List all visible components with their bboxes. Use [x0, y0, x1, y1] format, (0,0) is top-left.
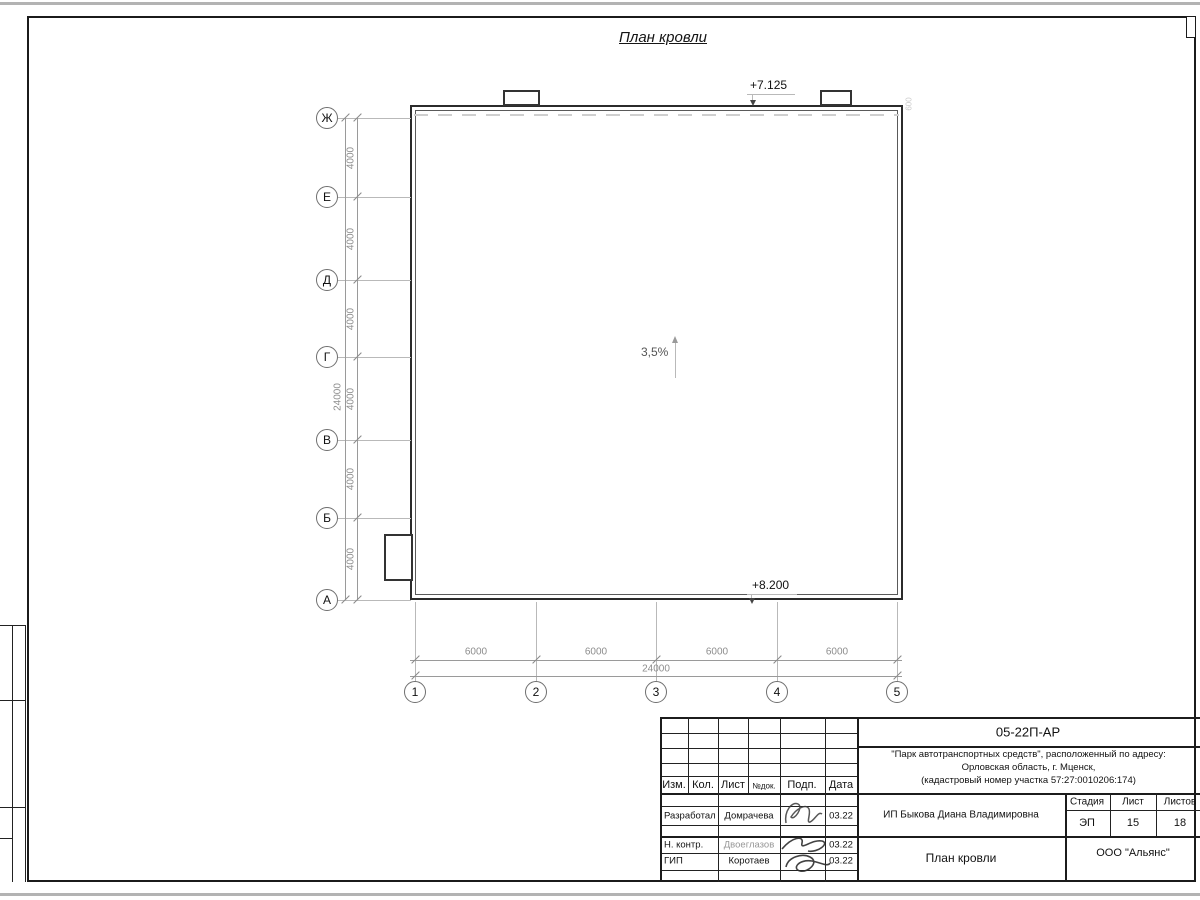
- axis-line: [338, 118, 411, 119]
- dim-label: 6000: [706, 647, 728, 658]
- wall-bumpout: [384, 534, 413, 581]
- project-description: "Парк автотранспортных средств", располо…: [860, 748, 1197, 787]
- dim-label: 6000: [465, 647, 487, 658]
- person-name: Двоеглазов: [724, 840, 775, 851]
- titleblock-line: [660, 763, 857, 764]
- axis-line: [338, 600, 411, 601]
- signature-domracheva: [782, 797, 828, 833]
- axis-letter: Е: [323, 190, 331, 204]
- col-header-ndoc: №док.: [752, 782, 775, 791]
- dim-total-label: 24000: [333, 383, 344, 411]
- titleblock-line: [1110, 793, 1111, 836]
- side-stamp-line: [12, 625, 13, 882]
- axis-letter: В: [323, 433, 331, 447]
- col-header-list: Лист: [721, 779, 745, 791]
- axis-bubble-col: 1: [404, 681, 426, 703]
- dim-label: 4000: [346, 548, 357, 570]
- slope-arrow-shaft: [675, 342, 676, 378]
- axis-bubble-col: 3: [645, 681, 667, 703]
- doc-number: 05-22П-АР: [996, 725, 1060, 740]
- slope-label: 3,5%: [641, 345, 668, 359]
- titleblock-line: [1065, 793, 1067, 882]
- axis-bubble-row: А: [316, 589, 338, 611]
- project-line: Орловская область, г. Мценск,: [860, 761, 1197, 774]
- role-label: ГИП: [664, 856, 683, 867]
- project-line: "Парк автотранспортных средств", располо…: [860, 748, 1197, 761]
- titleblock-line: [660, 748, 857, 749]
- titleblock-line: [660, 776, 857, 777]
- titleblock-line: [660, 717, 662, 882]
- side-stamp-line: [0, 807, 26, 808]
- stage-label: Стадия: [1070, 797, 1104, 808]
- titleblock-line: [660, 836, 1200, 838]
- axis-bubble-row: Д: [316, 269, 338, 291]
- axis-number: 1: [412, 685, 419, 699]
- sheet-title: План кровли: [926, 851, 997, 865]
- dim-line-left-inner: [357, 118, 358, 600]
- titleblock-line: [718, 717, 719, 882]
- frame-corner-box: [1186, 16, 1196, 38]
- signature-korotaev: [778, 833, 836, 877]
- side-stamp-line: [0, 625, 26, 626]
- titleblock-line: [660, 717, 1200, 719]
- axis-bubble-col: 5: [886, 681, 908, 703]
- drawing-title: План кровли: [563, 29, 763, 46]
- sign-date: 03.22: [829, 811, 853, 822]
- axis-bubble-row: В: [316, 429, 338, 451]
- project-line: (кадастровый номер участка 57:27:0010206…: [860, 774, 1197, 787]
- dim-label: 4000: [346, 468, 357, 490]
- axis-letter: А: [323, 593, 331, 607]
- role-label: Разработал: [664, 811, 716, 822]
- axis-letter: Г: [324, 350, 331, 364]
- slope-arrow-head-icon: [672, 336, 678, 343]
- axis-letter: Ж: [321, 111, 332, 125]
- sheets-value: 18: [1174, 817, 1186, 829]
- page-bottom-edge: [0, 893, 1200, 896]
- axis-letter: Б: [323, 511, 331, 525]
- person-name: Домрачева: [724, 811, 773, 822]
- elevation-top-arrow-icon: [750, 100, 756, 106]
- titleblock-line: [1156, 793, 1157, 836]
- sheets-label: Листов: [1164, 797, 1197, 808]
- dim-line-bottom-outer: [410, 676, 902, 677]
- dim-label: 6000: [826, 647, 848, 658]
- side-stamp-line: [0, 700, 26, 701]
- axis-bubble-row: Б: [316, 507, 338, 529]
- titleblock-line: [1065, 810, 1200, 811]
- dim-label: 4000: [346, 308, 357, 330]
- axis-bubble-row: Г: [316, 346, 338, 368]
- elevation-bottom-label: +8.200: [752, 578, 789, 592]
- parapet-dashed-line: [414, 114, 899, 116]
- titleblock-line: [748, 717, 749, 793]
- dim-label: 6000: [585, 647, 607, 658]
- axis-line: [338, 518, 411, 519]
- col-header-data: Дата: [829, 779, 853, 791]
- roof-hatch-left: [503, 90, 540, 106]
- axis-bubble-col: 2: [525, 681, 547, 703]
- company-name: ООО "Альянс": [1096, 847, 1170, 859]
- titleblock-line: [688, 717, 689, 793]
- axis-line: [338, 197, 411, 198]
- titleblock-line: [660, 733, 857, 734]
- axis-number: 2: [533, 685, 540, 699]
- col-header-kol: Кол.: [692, 779, 714, 791]
- axis-line: [338, 280, 411, 281]
- drawing-sheet: План кровли 600 3,5% +7.125 +8.200 4000 …: [0, 0, 1200, 900]
- axis-number: 5: [894, 685, 901, 699]
- axis-line: [536, 602, 537, 684]
- titleblock-line: [857, 717, 859, 882]
- col-header-podp: Подп.: [787, 779, 816, 791]
- elevation-top-label: +7.125: [750, 78, 787, 92]
- dim-label: 4000: [346, 388, 357, 410]
- page-top-edge: [0, 2, 1200, 5]
- axis-bubble-row: Ж: [316, 107, 338, 129]
- axis-number: 4: [774, 685, 781, 699]
- dim-total-label: 24000: [642, 664, 670, 675]
- elevation-top-leader: [747, 94, 795, 95]
- col-header-izm: Изм.: [662, 779, 686, 791]
- dim-line-left-outer: [345, 118, 346, 600]
- side-stamp-line: [25, 625, 26, 882]
- person-name: Коротаев: [728, 856, 769, 867]
- axis-letter: Д: [323, 273, 331, 287]
- titleblock-line: [660, 793, 1200, 795]
- dim-label: 4000: [346, 147, 357, 169]
- parapet-dim-label: 600: [905, 97, 914, 110]
- sheet-value: 15: [1127, 817, 1139, 829]
- axis-bubble-row: Е: [316, 186, 338, 208]
- axis-line: [338, 440, 411, 441]
- client-name: ИП Быкова Диана Владимировна: [883, 810, 1039, 821]
- elevation-bottom-leader: [747, 594, 797, 595]
- side-stamp-line: [0, 838, 12, 839]
- sheet-label: Лист: [1122, 797, 1144, 808]
- role-label: Н. контр.: [664, 840, 703, 851]
- axis-bubble-col: 4: [766, 681, 788, 703]
- axis-line: [415, 602, 416, 684]
- roof-hatch-right: [820, 90, 852, 106]
- axis-line: [897, 602, 898, 684]
- stage-value: ЭП: [1079, 817, 1095, 829]
- dim-label: 4000: [346, 228, 357, 250]
- axis-line: [777, 602, 778, 684]
- axis-number: 3: [653, 685, 660, 699]
- elevation-bottom-arrow-icon: [749, 598, 755, 604]
- axis-line: [338, 357, 411, 358]
